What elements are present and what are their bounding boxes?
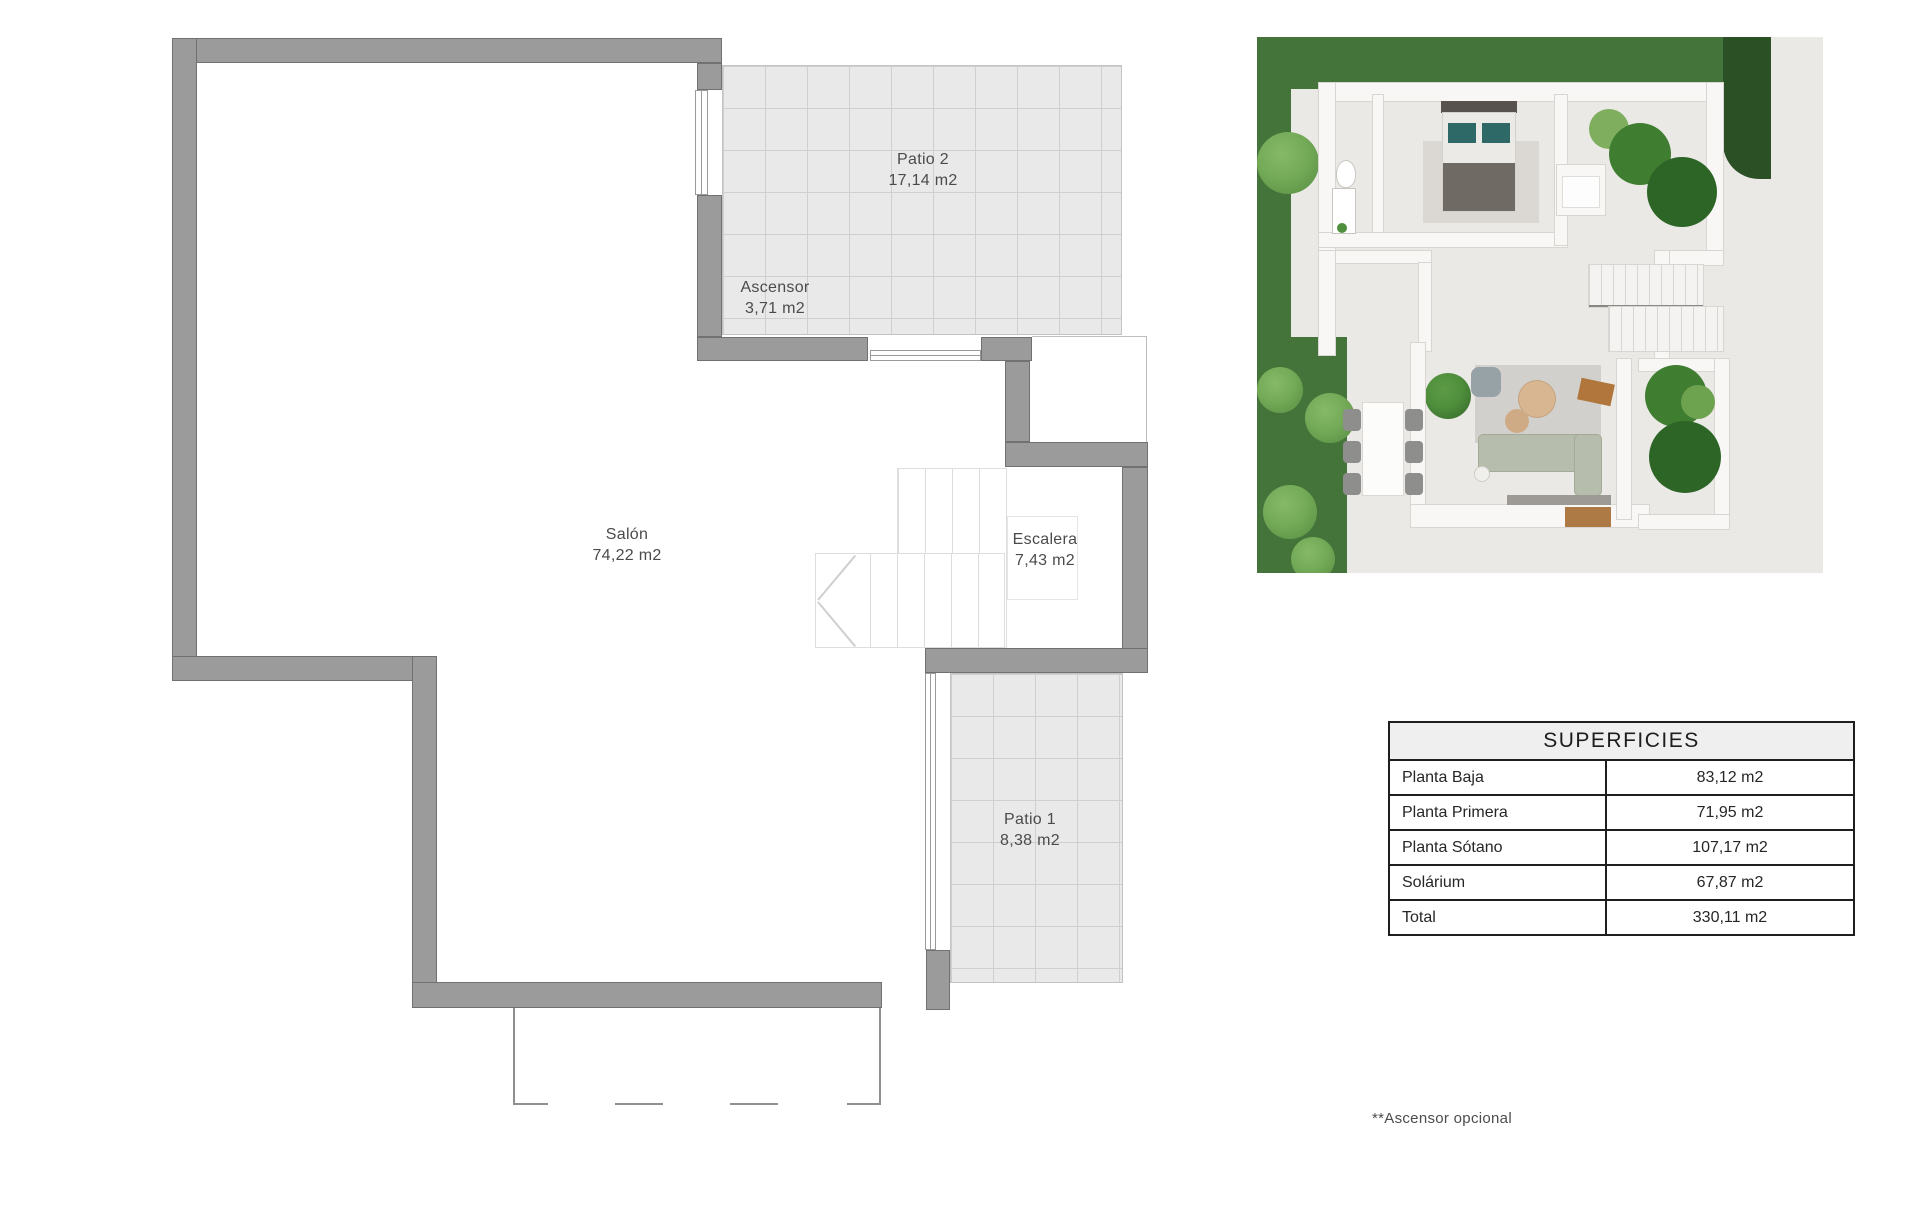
mini-pillow	[1482, 123, 1510, 143]
room-area: 8,38 m2	[1000, 830, 1060, 851]
wall-ascensor-left-upper	[697, 63, 722, 90]
wall-left	[172, 38, 197, 681]
mini-chair	[1343, 473, 1361, 495]
porch-dash	[730, 1103, 778, 1105]
row-value: 83,12 m2	[1607, 761, 1853, 794]
mini-dining-table	[1363, 403, 1403, 495]
room-name: Salón	[592, 524, 661, 545]
porch-line-right	[879, 1008, 881, 1105]
mini-wall	[1419, 263, 1431, 351]
mini-chair	[1343, 441, 1361, 463]
room-label-ascensor: Ascensor 3,71 m2	[740, 277, 809, 319]
row-label: Total	[1390, 901, 1607, 934]
room-name: Patio 1	[1000, 809, 1060, 830]
mini-toilet	[1337, 161, 1355, 187]
wall-notch-bottom	[1005, 442, 1148, 467]
porch-dash	[615, 1103, 663, 1105]
wall-bottom-right-piece	[926, 950, 950, 1010]
stair-arrow-area	[816, 554, 860, 647]
render-3d-top-view	[1257, 37, 1823, 573]
porch-dash	[513, 1103, 548, 1105]
row-label: Planta Sótano	[1390, 831, 1607, 864]
mini-coffee-table-small	[1505, 409, 1529, 433]
mini-wall	[1319, 233, 1567, 247]
room-name: Patio 2	[888, 149, 957, 170]
mini-pillow	[1448, 123, 1476, 143]
page: Patio 2 17,14 m2 Ascensor 3,71 m2 Salón …	[0, 0, 1920, 1222]
footnote-ascensor-opcional: **Ascensor opcional	[1372, 1110, 1512, 1127]
row-label: Solárium	[1390, 866, 1607, 899]
room-label-patio1: Patio 1 8,38 m2	[1000, 809, 1060, 851]
wall-ascensor-left-lower	[697, 195, 722, 337]
mini-chair	[1405, 441, 1423, 463]
wall-bottom	[412, 982, 882, 1008]
mini-chair	[1343, 409, 1361, 431]
wall-top	[172, 38, 722, 63]
surfaces-table-title: SUPERFICIES	[1390, 723, 1853, 761]
row-value: 107,17 m2	[1607, 831, 1853, 864]
notch-outline-top	[1032, 336, 1146, 337]
wall-step-h	[172, 656, 437, 681]
mini-wall	[1617, 359, 1631, 519]
table-row: Planta Baja 83,12 m2	[1390, 761, 1853, 796]
grass-top	[1257, 37, 1725, 89]
mini-wall	[1319, 251, 1431, 263]
table-row: Total 330,11 m2	[1390, 901, 1853, 934]
mini-bed-headboard	[1441, 101, 1517, 113]
room-area: 17,14 m2	[888, 170, 957, 191]
room-label-patio2: Patio 2 17,14 m2	[888, 149, 957, 191]
plant	[1681, 385, 1715, 419]
mini-media-unit	[1507, 495, 1611, 505]
mini-pouf	[1471, 367, 1501, 397]
mini-wall	[1411, 505, 1649, 527]
mini-wall	[1373, 95, 1383, 245]
table-row: Planta Primera 71,95 m2	[1390, 796, 1853, 831]
mini-wood-floor	[1565, 507, 1611, 527]
room-name: Ascensor	[740, 277, 809, 298]
room-area: 3,71 m2	[740, 298, 809, 319]
bush	[1291, 537, 1335, 573]
row-value: 71,95 m2	[1607, 796, 1853, 829]
room-area: 74,22 m2	[592, 545, 661, 566]
porch-line-left	[513, 1008, 515, 1105]
bush	[1257, 132, 1319, 194]
wall-ascensor-bottom	[697, 337, 868, 361]
wall-escalera-bottom	[925, 648, 1148, 673]
plant	[1647, 157, 1717, 227]
window-salon-top	[870, 350, 981, 361]
row-value: 330,11 m2	[1607, 901, 1853, 934]
mini-chair	[1405, 409, 1423, 431]
mini-wall	[1319, 251, 1335, 355]
room-label-escalera: Escalera 7,43 m2	[1013, 529, 1078, 571]
surfaces-table: SUPERFICIES Planta Baja 83,12 m2 Planta …	[1388, 721, 1855, 936]
notch-outline-right	[1146, 336, 1147, 442]
mini-chair	[1405, 473, 1423, 495]
room-name: Escalera	[1013, 529, 1078, 550]
wall-window-right-piece	[981, 337, 1032, 361]
wall-notch-left	[1005, 361, 1030, 442]
room-area: 7,43 m2	[1013, 550, 1078, 571]
room-label-salon: Salón 74,22 m2	[592, 524, 661, 566]
mini-wall	[1639, 515, 1729, 529]
row-label: Planta Baja	[1390, 761, 1607, 794]
wall-right	[1122, 467, 1148, 673]
hedge	[1723, 37, 1771, 179]
window-patio1	[925, 673, 936, 950]
mini-plant-small	[1337, 223, 1347, 233]
row-value: 67,87 m2	[1607, 866, 1853, 899]
tree	[1425, 373, 1471, 419]
bush	[1263, 485, 1317, 539]
row-label: Planta Primera	[1390, 796, 1607, 829]
table-row: Planta Sótano 107,17 m2	[1390, 831, 1853, 866]
mini-stairs-upper	[1589, 265, 1703, 307]
bush	[1257, 367, 1303, 413]
mini-stairs-lower	[1609, 307, 1723, 351]
mini-blanket	[1443, 163, 1515, 211]
wall-step-v	[412, 656, 437, 1008]
mini-floor-lamp	[1475, 467, 1489, 481]
mini-sofa-arm	[1575, 435, 1601, 495]
porch-dash	[847, 1103, 881, 1105]
mini-appliance	[1563, 177, 1599, 207]
window-ascensor	[695, 90, 708, 195]
plant	[1649, 421, 1721, 493]
table-row: Solárium 67,87 m2	[1390, 866, 1853, 901]
